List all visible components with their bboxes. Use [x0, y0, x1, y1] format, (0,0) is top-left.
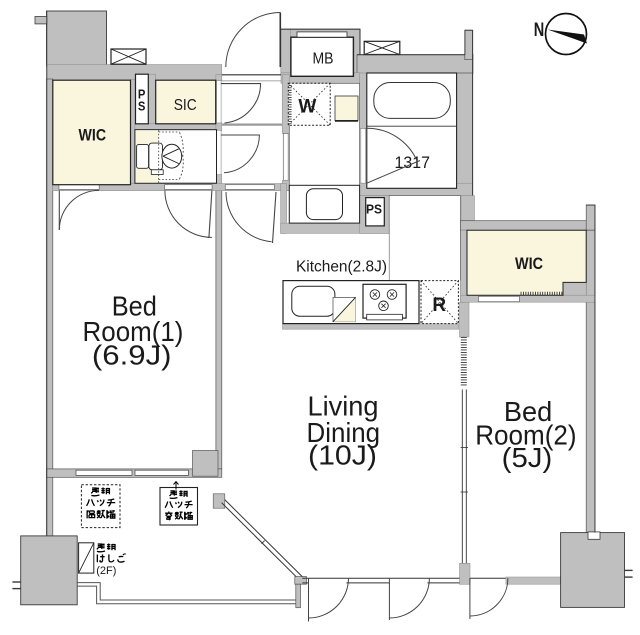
svg-text:(5J): (5J) — [502, 442, 553, 473]
svg-text:R: R — [432, 295, 446, 316]
svg-text:W: W — [298, 97, 316, 118]
svg-text:SIC: SIC — [174, 97, 197, 114]
svg-text:(6.9J): (6.9J) — [92, 340, 172, 371]
svg-text:Kitchen(2.8J): Kitchen(2.8J) — [296, 259, 387, 276]
svg-text:MB: MB — [313, 51, 334, 68]
svg-text:WIC: WIC — [515, 255, 543, 273]
svg-text:PS: PS — [366, 202, 382, 217]
svg-text:(2F): (2F) — [96, 565, 116, 577]
svg-text:(10J): (10J) — [308, 440, 377, 471]
svg-text:N: N — [534, 20, 545, 41]
svg-text:S: S — [138, 98, 146, 113]
svg-text:WIC: WIC — [79, 127, 107, 145]
